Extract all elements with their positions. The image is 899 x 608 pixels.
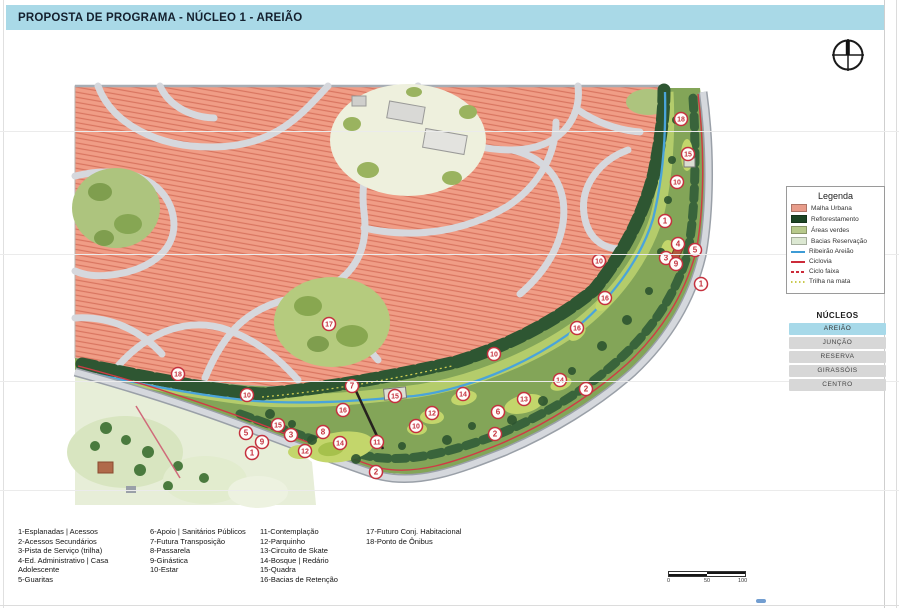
page-edge-line (896, 0, 897, 608)
scan-artifact-line (0, 490, 899, 491)
map-marker-14: 14 (457, 388, 470, 401)
svg-text:6: 6 (496, 408, 501, 417)
estate-compound (330, 84, 486, 196)
svg-text:1: 1 (250, 449, 255, 458)
scale-label: 100 (738, 578, 747, 584)
legend-swatch-line (791, 251, 805, 253)
legend-swatch-dotted (791, 281, 805, 283)
program-column: 1-Esplanadas | Acessos2-Acessos Secundár… (18, 527, 140, 585)
svg-text:12: 12 (301, 449, 309, 456)
nucleo-button-areião[interactable]: AREIÃO (789, 323, 886, 335)
svg-text:4: 4 (676, 240, 681, 249)
nucleos-panel: NÚCLEOS AREIÃOJUNÇÃORESERVAGIRASSÓISCENT… (789, 311, 886, 391)
legend-panel: Legenda Malha UrbanaReflorestamentoÁreas… (786, 186, 885, 294)
svg-text:16: 16 (339, 408, 347, 415)
legend-swatch-fill (791, 237, 807, 245)
program-column: 11-Contemplação12-Parquinho13-Circuito d… (260, 527, 356, 585)
legend-item: Ciclovia (791, 258, 880, 265)
program-item: 3-Pista de Serviço (trilha) (18, 546, 140, 556)
legend-swatch-dashed (791, 271, 805, 273)
scale-bar-segment (669, 574, 707, 576)
page-title: PROPOSTA DE PROGRAMA - NÚCLEO 1 - AREIÃO (18, 12, 302, 24)
map-marker-12: 12 (299, 445, 312, 458)
legend-label: Malha Urbana (811, 205, 852, 212)
program-item: 9-Ginástica (150, 556, 250, 566)
map-marker-15: 15 (272, 419, 285, 432)
program-item: 14-Bosque | Redário (260, 556, 356, 566)
nucleos-title: NÚCLEOS (789, 311, 886, 320)
program-item: 5-Guaritas (18, 575, 140, 585)
svg-text:10: 10 (412, 424, 420, 431)
nucleo-button-reserva[interactable]: RESERVA (789, 351, 886, 363)
map-marker-2: 2 (489, 428, 502, 441)
map-marker-9: 9 (670, 258, 683, 271)
map-marker-16: 16 (599, 292, 612, 305)
map-marker-13: 13 (518, 393, 531, 406)
map-marker-4: 4 (672, 238, 685, 251)
legend-item: Bacias Reservação (791, 237, 880, 245)
scale-bar: 0 50 100 (668, 571, 746, 589)
map-marker-16: 16 (571, 322, 584, 335)
scale-label: 0 (667, 578, 670, 584)
map-marker-9: 9 (256, 436, 269, 449)
svg-text:16: 16 (573, 326, 581, 333)
program-item: 15-Quadra (260, 565, 356, 575)
map-marker-12: 12 (426, 407, 439, 420)
svg-text:10: 10 (490, 352, 498, 359)
map-marker-6: 6 (492, 406, 505, 419)
map-marker-10: 10 (410, 420, 423, 433)
program-item: 8-Passarela (150, 546, 250, 556)
map-marker-18: 18 (675, 113, 688, 126)
scan-artifact-line (0, 131, 899, 132)
svg-text:9: 9 (260, 438, 265, 447)
svg-text:14: 14 (459, 392, 467, 399)
svg-text:9: 9 (674, 260, 679, 269)
map-marker-18: 18 (172, 368, 185, 381)
svg-text:18: 18 (677, 117, 685, 124)
legend-item: Trilha na mata (791, 278, 880, 285)
program-item: 4-Ed. Administrativo | Casa Adolescente (18, 556, 140, 575)
program-item: 13-Circuito de Skate (260, 546, 356, 556)
program-list: 1-Esplanadas | Acessos2-Acessos Secundár… (18, 527, 526, 585)
svg-text:1: 1 (699, 280, 704, 289)
svg-text:15: 15 (684, 152, 692, 159)
nucleo-button-centro[interactable]: CENTRO (789, 379, 886, 391)
map-marker-1: 1 (246, 447, 259, 460)
scan-artifact-line (0, 381, 899, 382)
map-marker-16: 16 (337, 404, 350, 417)
map-marker-10: 10 (488, 348, 501, 361)
nucleos-list: AREIÃOJUNÇÃORESERVAGIRASSÓISCENTRO (789, 323, 886, 391)
legend-item: Ciclo faixa (791, 268, 880, 275)
map-marker-10: 10 (671, 176, 684, 189)
legend-label: Trilha na mata (809, 278, 850, 285)
scan-artifact-line (0, 254, 899, 255)
compass-north-icon (829, 36, 867, 74)
program-item: 6-Apoio | Sanitários Públicos (150, 527, 250, 537)
legend-swatch-line (791, 261, 805, 263)
legend-swatch-fill (791, 226, 807, 234)
legend-item: Ribeirão Areião (791, 248, 880, 255)
svg-text:2: 2 (584, 385, 589, 394)
legend-label: Bacias Reservação (811, 238, 867, 245)
svg-text:10: 10 (673, 180, 681, 187)
legend-swatch-fill (791, 204, 807, 212)
program-item: 16-Bacias de Retenção (260, 575, 356, 585)
svg-text:13: 13 (520, 397, 528, 404)
svg-text:15: 15 (274, 423, 282, 430)
svg-text:17: 17 (325, 322, 333, 329)
program-item: 12-Parquinho (260, 537, 356, 547)
map-marker-2: 2 (580, 383, 593, 396)
site-plan-map: 1815101453911016161710214136212141015716… (0, 0, 899, 608)
legend-label: Ciclo faixa (809, 268, 839, 275)
map-marker-15: 15 (682, 148, 695, 161)
svg-text:1: 1 (663, 217, 668, 226)
map-marker-17: 17 (323, 318, 336, 331)
legend-title: Legenda (791, 191, 880, 201)
map-marker-3: 3 (285, 429, 298, 442)
map-marker-8: 8 (317, 426, 330, 439)
svg-text:12: 12 (428, 411, 436, 418)
map-marker-1: 1 (659, 215, 672, 228)
program-item: 10-Estar (150, 565, 250, 575)
legend-swatch-fill (791, 215, 807, 223)
program-item: 1-Esplanadas | Acessos (18, 527, 140, 537)
program-item: 11-Contemplação (260, 527, 356, 537)
program-column: 17-Futuro Conj. Habitacional18-Ponto de … (366, 527, 526, 585)
nucleo-button-junção[interactable]: JUNÇÃO (789, 337, 886, 349)
map-marker-15: 15 (389, 390, 402, 403)
program-item: 17-Futuro Conj. Habitacional (366, 527, 526, 537)
legend-item: Áreas verdes (791, 226, 880, 234)
map-marker-11: 11 (371, 436, 384, 449)
svg-text:2: 2 (493, 430, 498, 439)
map-marker-10: 10 (241, 389, 254, 402)
legend-item: Reflorestamento (791, 215, 880, 223)
map-marker-14: 14 (554, 374, 567, 387)
legend-item: Malha Urbana (791, 204, 880, 212)
svg-text:14: 14 (336, 441, 344, 448)
svg-text:16: 16 (601, 296, 609, 303)
map-marker-5: 5 (240, 427, 253, 440)
scan-blue-mark (756, 599, 766, 603)
nucleo-button-girassóis[interactable]: GIRASSÓIS (789, 365, 886, 377)
title-bar: PROPOSTA DE PROGRAMA - NÚCLEO 1 - AREIÃO (6, 5, 884, 30)
svg-text:5: 5 (244, 429, 249, 438)
svg-text:2: 2 (374, 468, 379, 477)
page-edge-line (3, 0, 4, 608)
map-marker-2: 2 (370, 466, 383, 479)
scale-label: 50 (704, 578, 710, 584)
svg-text:10: 10 (595, 259, 603, 266)
program-item: 2-Acessos Secundários (18, 537, 140, 547)
map-marker-10: 10 (593, 255, 606, 268)
program-item: 18-Ponto de Ônibus (366, 537, 526, 547)
page-edge-line (884, 0, 885, 608)
page-edge-line (0, 605, 899, 606)
svg-text:8: 8 (321, 428, 326, 437)
svg-text:15: 15 (391, 394, 399, 401)
program-column: 6-Apoio | Sanitários Públicos7-Futura Tr… (150, 527, 250, 585)
map-marker-14: 14 (334, 437, 347, 450)
svg-text:18: 18 (174, 372, 182, 379)
svg-text:7: 7 (350, 382, 355, 391)
scale-bar-segment (707, 572, 745, 574)
legend-label: Áreas verdes (811, 227, 849, 234)
legend-label: Reflorestamento (811, 216, 859, 223)
svg-text:3: 3 (289, 431, 294, 440)
legend-label: Ciclovia (809, 258, 832, 265)
map-marker-1: 1 (695, 278, 708, 291)
svg-text:10: 10 (243, 393, 251, 400)
program-item: 7-Futura Transposição (150, 537, 250, 547)
legend-items: Malha UrbanaReflorestamentoÁreas verdesB… (791, 204, 880, 285)
legend-label: Ribeirão Areião (809, 248, 853, 255)
svg-text:11: 11 (373, 440, 381, 447)
